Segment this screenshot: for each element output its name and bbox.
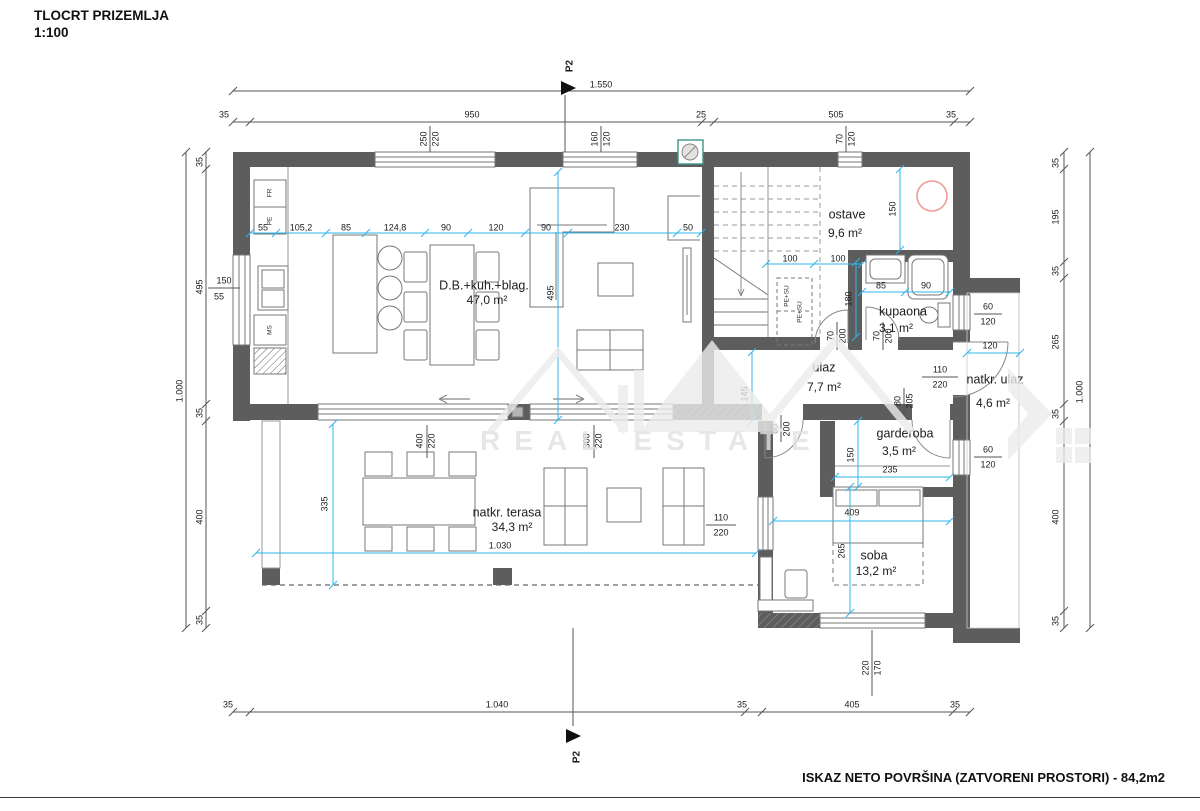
side-table — [598, 263, 633, 296]
dimension-label: 495 — [545, 285, 555, 300]
dimension-label: 120 — [980, 459, 995, 469]
section-marker-label: P2 — [565, 59, 576, 72]
dimension-label: 55 — [214, 291, 224, 301]
dimension-label: 400 — [1050, 509, 1060, 524]
room-area: 4,6 m² — [976, 396, 1010, 410]
dimension-label: 505 — [828, 109, 843, 119]
dimension-label: 265 — [836, 543, 846, 558]
dimension-label: 195 — [1050, 209, 1060, 224]
sofa-group — [530, 188, 700, 370]
room-name: ostave — [829, 207, 866, 221]
boiler-circle — [917, 181, 947, 211]
terrace-table — [363, 478, 475, 525]
dimension-label: 110 — [714, 512, 728, 522]
dimension-label: 70 — [834, 134, 844, 144]
dimension-label: 265 — [1050, 334, 1060, 349]
dimension-label: 120 — [980, 316, 995, 326]
dimension-label: 400 — [194, 509, 204, 524]
wc-tank — [938, 303, 950, 327]
room-name: soba — [860, 548, 887, 562]
dimension-label: 105,2 — [290, 222, 313, 232]
dimension-label: 150 — [216, 275, 231, 285]
room-area: 13,2 m² — [856, 564, 897, 578]
washer-dryer-box — [777, 278, 812, 345]
room-area: 34,3 m² — [492, 520, 533, 534]
desk-chair — [785, 570, 807, 598]
dimension-label: 35 — [1050, 616, 1060, 626]
floorplan-sheet: { "title": {"name": "TLOCRT PRIZEMLJA", … — [0, 0, 1200, 811]
dimension-label: 400 — [414, 433, 424, 448]
dimension-label: 335 — [319, 496, 329, 511]
dimension-label: 405 — [844, 699, 859, 709]
dimension-label: 235 — [882, 464, 897, 474]
dimension-label: 35 — [1050, 266, 1060, 276]
dimension-label: 170 — [872, 660, 882, 675]
net-area-summary: ISKAZ NETO POVRŠINA (ZATVORENI PROSTORI)… — [0, 770, 1165, 785]
dimension-label: 950 — [464, 109, 479, 119]
dimension-label: 25 — [696, 109, 706, 119]
dimension-label: 120 — [601, 131, 611, 146]
dimension-label: 120 — [488, 222, 503, 232]
room-name: D.B.+kuh.+blag. — [439, 278, 529, 292]
dimension-label: 1.030 — [489, 540, 512, 550]
room-area: 47,0 m² — [467, 293, 508, 307]
chimney — [678, 140, 703, 164]
dimension-label: 124,8 — [384, 222, 407, 232]
room-area: 3,5 m² — [882, 444, 916, 458]
room-area: 7,7 m² — [807, 380, 841, 394]
dimension-label: 120 — [846, 131, 856, 146]
dimension-label: 220 — [426, 433, 436, 448]
dimension-label: 50 — [683, 222, 693, 232]
dimension-label: 35 — [223, 699, 233, 709]
dimension-label: 90 — [921, 280, 931, 290]
section-marker-label: P2 — [572, 750, 583, 763]
section-arrow-top — [561, 81, 576, 95]
dimension-label: 100 — [830, 253, 845, 263]
dimension-label: 35 — [194, 615, 204, 625]
room-area: 3,1 m² — [879, 321, 913, 335]
dimension-label: 160 — [589, 131, 599, 146]
room-name: natkr. terasa — [473, 505, 542, 519]
dimension-label: 85 — [876, 280, 886, 290]
dimension-label: 250 — [418, 131, 428, 146]
stairs — [714, 167, 820, 337]
dimension-label: 120 — [982, 340, 997, 350]
section-arrow-bottom — [566, 729, 581, 743]
watermark-text: REAL ESTATE — [480, 425, 824, 456]
bar-stool — [378, 306, 402, 330]
dimension-label: 35 — [194, 157, 204, 167]
dimension-label: 220 — [430, 131, 440, 146]
dimension-label: 1.550 — [590, 79, 613, 89]
appliance-label: PE+SU — [784, 285, 791, 307]
desk — [758, 600, 813, 611]
dimension-label: 220 — [713, 527, 728, 537]
dimension-label: 35 — [194, 408, 204, 418]
dimension-label: 110 — [933, 364, 947, 374]
dimension-label: 1.000 — [1074, 381, 1084, 404]
floorplan-drawing: 1.55035950255053525022016012070120354953… — [0, 0, 1200, 811]
appliance-label: FR — [267, 188, 274, 197]
kitchen — [254, 167, 402, 404]
dimension-label: 180 — [843, 291, 853, 306]
dimension-label: 35 — [737, 699, 747, 709]
dimension-label: 409 — [844, 507, 859, 517]
dimension-label: 85 — [341, 222, 351, 232]
dimension-label: 220 — [932, 379, 947, 389]
appliance-label: PE — [267, 216, 274, 225]
desk-shelf — [760, 557, 772, 601]
dimension-label: 90 — [441, 222, 451, 232]
footer-divider — [0, 797, 1200, 798]
dimension-label: 150 — [845, 447, 855, 462]
dimension-label: 1.040 — [486, 699, 509, 709]
dimension-label: 1.000 — [174, 380, 184, 403]
dimension-label: 35 — [219, 109, 229, 119]
dimension-label: 100 — [782, 253, 797, 263]
bar-stool — [378, 276, 402, 300]
terrace-edge — [262, 421, 280, 568]
dimension-label: 35 — [946, 109, 956, 119]
appliance-label: PE+SU — [797, 301, 804, 323]
dimension-label: 35 — [950, 699, 960, 709]
dimension-label: 60 — [983, 301, 993, 311]
entrance-door — [953, 342, 1008, 397]
dimension-label: 495 — [194, 279, 204, 294]
dimension-label: 60 — [983, 444, 993, 454]
dimension-label: 90 — [541, 222, 551, 232]
dimension-label: 230 — [614, 222, 629, 232]
bar-stool — [378, 246, 402, 270]
room-name: kupaona — [879, 304, 927, 318]
kitchen-island — [333, 235, 377, 353]
dimension-label: 35 — [1050, 158, 1060, 168]
dimension-label: 220 — [860, 660, 870, 675]
room-area: 9,6 m² — [828, 226, 862, 240]
bedroom-furniture — [758, 466, 950, 611]
dimension-label: 150 — [887, 201, 897, 216]
appliance-label: MS — [267, 324, 274, 334]
dimension-label: 205 — [904, 393, 914, 408]
dishwasher — [254, 348, 286, 374]
terrace-coffee-table — [607, 488, 641, 522]
